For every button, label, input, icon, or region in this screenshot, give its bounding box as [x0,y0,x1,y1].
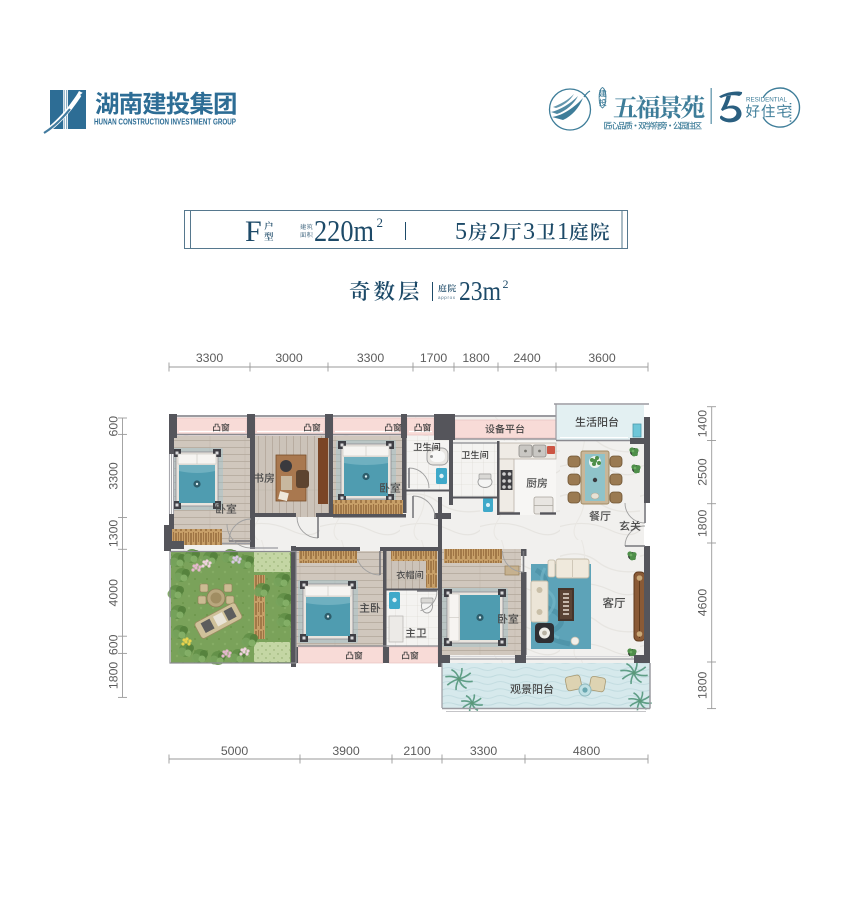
svg-text:1700: 1700 [420,351,448,365]
svg-text:2: 2 [377,215,384,230]
svg-text:1400: 1400 [696,410,710,438]
svg-text:2100: 2100 [403,744,431,758]
svg-text:3900: 3900 [332,744,360,758]
svg-text:1300: 1300 [107,520,121,548]
svg-text:3600: 3600 [588,351,616,365]
svg-text:3300: 3300 [107,462,121,490]
svg-text:3: 3 [523,219,535,245]
svg-text:600: 600 [107,416,121,437]
svg-text:HUNAN CONSTRUCTION INVESTMENT: HUNAN CONSTRUCTION INVESTMENT GROUP [94,117,236,127]
svg-text:2500: 2500 [696,458,710,486]
svg-text:F: F [245,215,262,248]
svg-text:1800: 1800 [696,671,710,699]
svg-text:3000: 3000 [275,351,303,365]
svg-text:3300: 3300 [357,351,385,365]
svg-text:4000: 4000 [107,579,121,607]
svg-text:1800: 1800 [462,351,490,365]
svg-text:2: 2 [503,277,509,291]
svg-text:1800: 1800 [107,662,121,690]
svg-text:4600: 4600 [696,589,710,617]
svg-text:3300: 3300 [470,744,498,758]
svg-text:1800: 1800 [696,510,710,538]
svg-text:4800: 4800 [573,744,601,758]
svg-text:2: 2 [489,219,501,245]
svg-text:2400: 2400 [513,351,541,365]
svg-text:220m: 220m [314,213,374,248]
svg-text:approx: approx [438,295,456,300]
svg-text:23m: 23m [459,276,501,306]
svg-text:1: 1 [557,219,569,245]
svg-text:600: 600 [107,634,121,655]
svg-text:RESIDENTIAL: RESIDENTIAL [746,97,787,104]
svg-text:5: 5 [455,219,467,245]
svg-text:5000: 5000 [221,744,249,758]
svg-text:3300: 3300 [196,351,224,365]
